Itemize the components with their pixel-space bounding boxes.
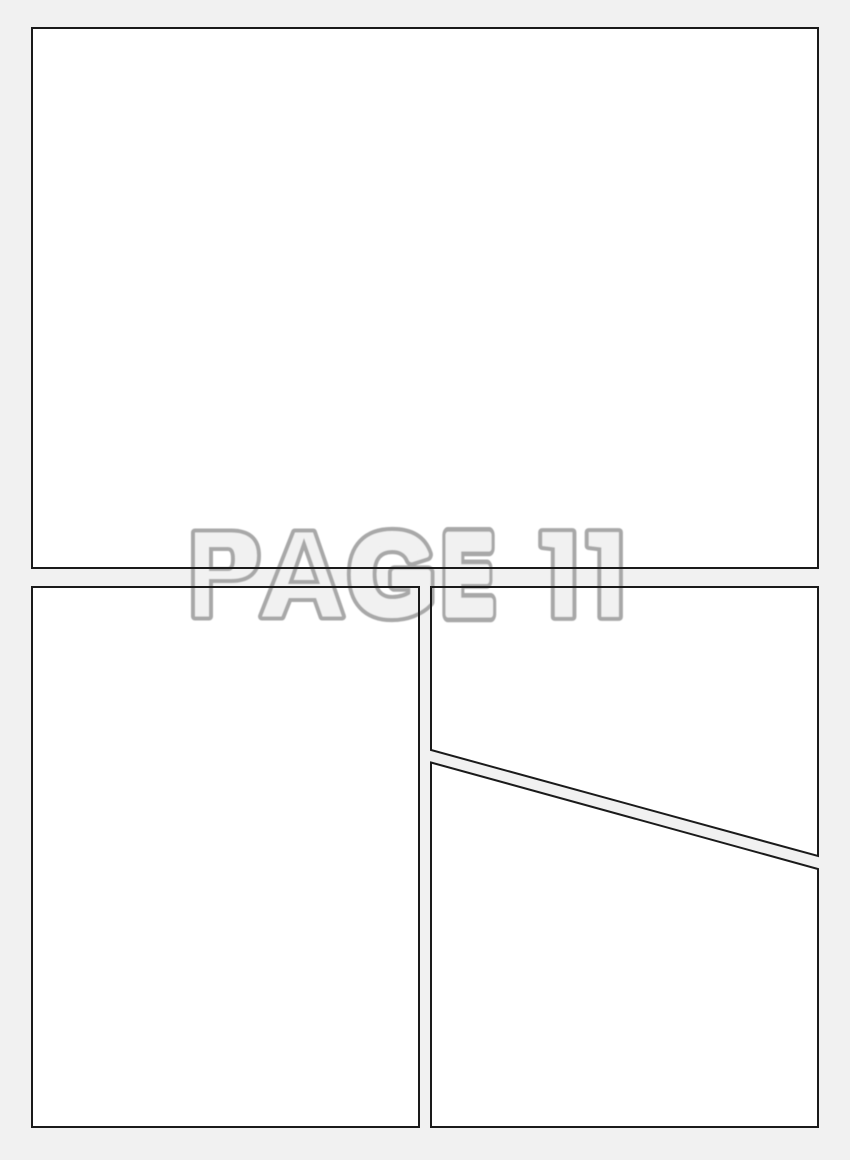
svg-text:E: E <box>443 511 494 639</box>
svg-text:G: G <box>349 511 434 638</box>
